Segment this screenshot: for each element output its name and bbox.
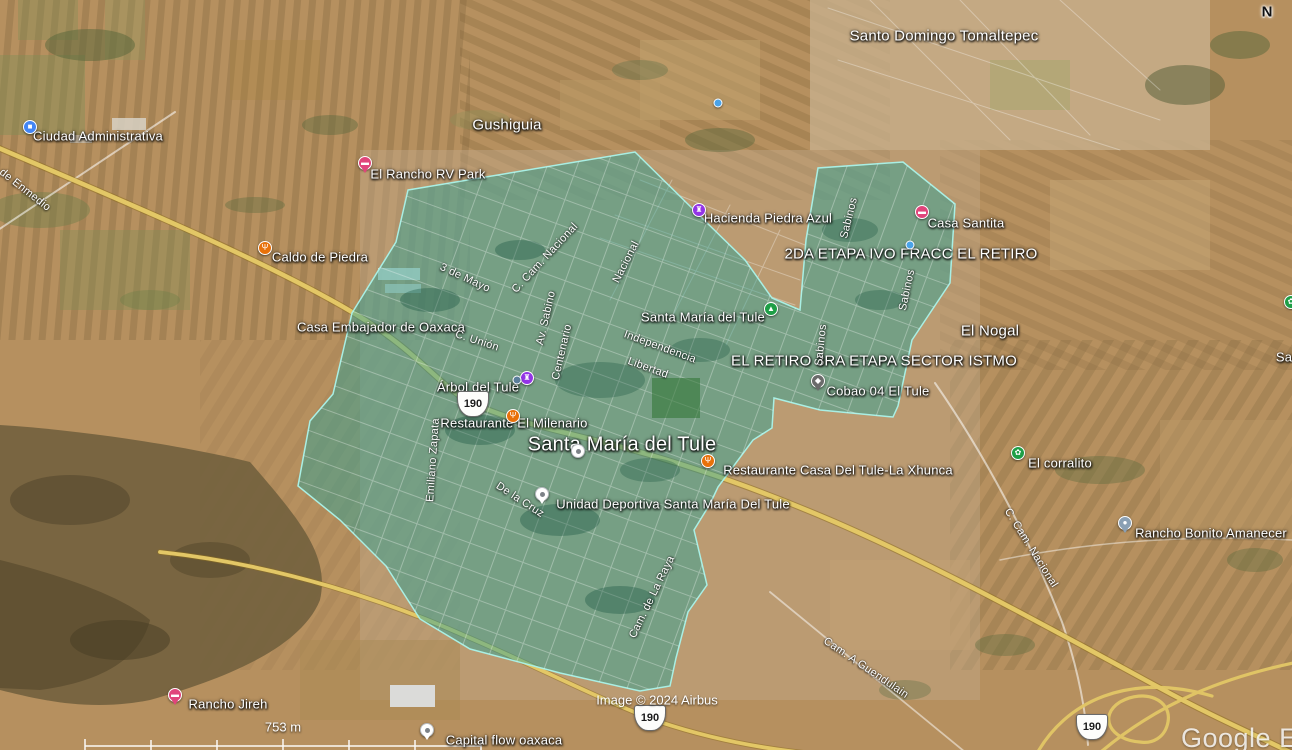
arbol-del-tule-icon[interactable]: ♜ <box>520 371 534 385</box>
street-label-sabinos-1: Sabinos <box>838 196 860 240</box>
street-label-emiliano-zapata: Emiliano Zapata <box>424 418 442 503</box>
unidad-deportiva-icon[interactable] <box>535 487 549 501</box>
street-label-av-sabino: Av. Sabino <box>534 290 558 346</box>
highway-190-shield-icon: 190 <box>634 705 666 731</box>
street-label-c-cam-nacional-west: C. Cam. Nacional <box>510 221 581 296</box>
place-label-santa-maria-del-tule-small[interactable]: Santa María del Tule <box>641 310 765 325</box>
rancho-jireh-icon[interactable]: ▬ <box>168 688 182 702</box>
santa-maria-del-tule-town-marker[interactable]: ▲ <box>764 302 778 316</box>
imagery-attribution: Image © 2024 Airbus <box>596 693 718 708</box>
map-label-layer: Santo Domingo TomaltepecGushiguiaCiudad … <box>0 0 1292 750</box>
place-label-el-rancho-rv-park[interactable]: El Rancho RV Park <box>370 167 485 182</box>
place-label-ciudad-administrativa[interactable]: Ciudad Administrativa <box>33 129 163 144</box>
ciudad-administrativa-icon[interactable]: ■ <box>23 120 37 134</box>
highway-190-shield-icon: 190 <box>457 391 489 417</box>
place-label-el-corralito[interactable]: El corralito <box>1028 456 1092 471</box>
place-label-gushiguia[interactable]: Gushiguia <box>472 117 541 134</box>
place-label-cobao-04-el-tule[interactable]: Cobao 04 El Tule <box>827 384 930 399</box>
place-label-santo-domingo-tomaltepec[interactable]: Santo Domingo Tomaltepec <box>850 28 1039 45</box>
el-rancho-rv-park-icon[interactable]: ▬ <box>358 156 372 170</box>
place-label-santa-maria-del-tule-big[interactable]: Santa María del Tule <box>528 434 717 457</box>
casa-santita-icon[interactable]: ▬ <box>915 205 929 219</box>
earth-viewport[interactable]: Santo Domingo TomaltepecGushiguiaCiudad … <box>0 0 1292 750</box>
place-label-unidad-deportiva-santa-maria-del-tule[interactable]: Unidad Deportiva Santa María Del Tule <box>556 497 790 512</box>
street-label-libertad: Libertad <box>626 355 670 381</box>
street-label-centenario: Centenario <box>550 323 574 381</box>
compass-north-icon[interactable]: N <box>1262 4 1273 21</box>
casa-del-tule-la-xhunca-icon[interactable]: Ψ <box>701 454 715 468</box>
street-label-sabinos-2: Sabinos <box>897 268 917 311</box>
edge-green-icon[interactable]: ✿ <box>1284 295 1292 309</box>
restaurante-el-milenario-icon[interactable]: Ψ <box>506 409 520 423</box>
small-blue-poi-retiro[interactable] <box>906 241 915 250</box>
street-label-cam-de-la-raya: Cam. de La Raya <box>627 554 677 640</box>
street-label-cam-a-guendulain: Cam. A Guendulain <box>821 635 911 701</box>
place-label-restaurante-casa-del-tule-la-xhunca[interactable]: Restaurante Casa Del Tule-La Xhunca <box>723 463 953 478</box>
capital-flow-oaxaca-icon[interactable] <box>420 723 434 737</box>
highway-190-shield-icon: 190 <box>1076 714 1108 740</box>
cobao-04-el-tule-icon[interactable]: ◆ <box>811 374 825 388</box>
place-label-hacienda-piedra-azul[interactable]: Hacienda Piedra Azul <box>704 211 832 226</box>
place-label-rancho-jireh[interactable]: Rancho Jireh <box>189 697 268 712</box>
google-earth-watermark: Google Earth <box>1181 723 1292 750</box>
el-corralito-icon[interactable]: ✿ <box>1011 446 1025 460</box>
place-label-rancho-bonito-amanecer[interactable]: Rancho Bonito Amanecer <box>1135 526 1287 541</box>
street-label-nacional: Nacional <box>610 239 641 285</box>
place-label-casa-embajador-de-oaxaca[interactable]: Casa Embajador de Oaxaca <box>297 320 465 335</box>
arbol-del-tule-secondary-dot[interactable] <box>513 376 522 385</box>
small-blue-poi-north[interactable] <box>714 99 723 108</box>
place-label-el-nogal[interactable]: El Nogal <box>961 323 1019 340</box>
street-label-c-union: C. Unión <box>454 328 501 353</box>
caldo-de-piedra-icon[interactable]: Ψ <box>258 241 272 255</box>
place-label-caldo-de-piedra[interactable]: Caldo de Piedra <box>272 250 368 265</box>
place-label-capital-flow-oaxaca[interactable]: Capital flow oaxaca <box>446 733 563 748</box>
street-label-de-enmedio: de Enmedio <box>0 166 53 213</box>
place-label-edge-clipped-label[interactable]: Sa <box>1276 350 1292 365</box>
scale-bar-label: 753 m <box>265 720 301 735</box>
rancho-bonito-amanecer-icon[interactable]: ● <box>1118 516 1132 530</box>
hacienda-piedra-azul-icon[interactable]: ♜ <box>692 203 706 217</box>
street-label-3-de-mayo: 3 de Mayo <box>438 261 492 295</box>
place-label-el-retiro-3ra-etapa-sector-istmo[interactable]: EL RETIRO 3RA ETAPA SECTOR ISTMO <box>731 353 1017 370</box>
place-label-casa-santita[interactable]: Casa Santita <box>928 216 1005 231</box>
santa-maria-town-dot[interactable] <box>571 444 585 458</box>
street-label-c-cam-nacional-east: C. Cam. Nacional <box>1002 506 1060 590</box>
